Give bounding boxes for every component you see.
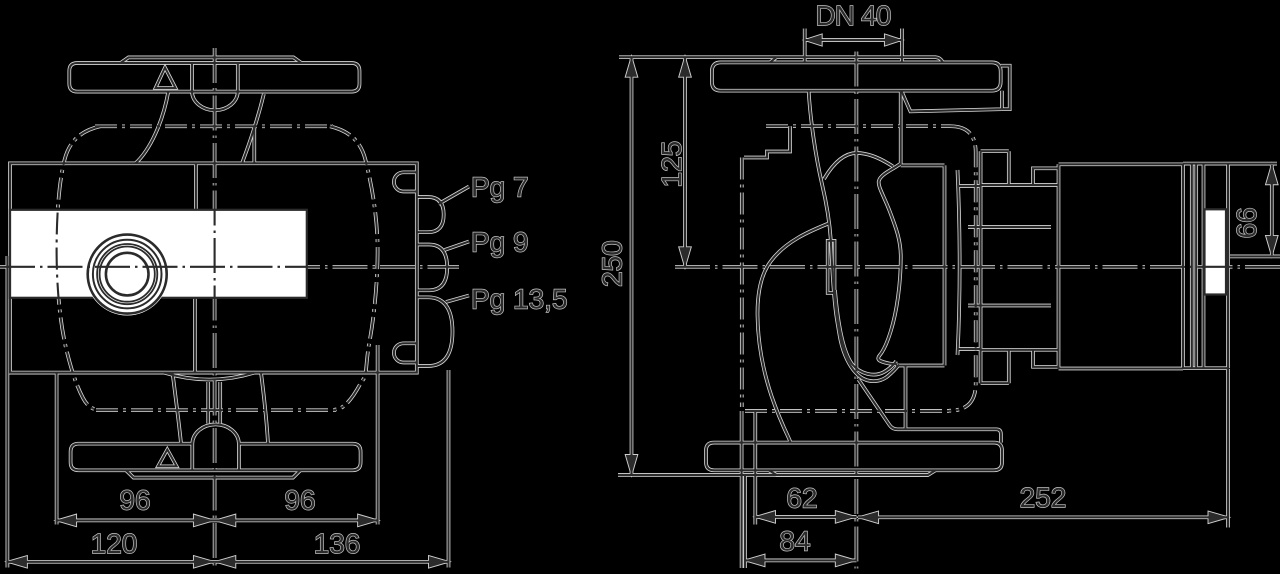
svg-text:Pg 7: Pg 7 xyxy=(471,172,529,203)
svg-text:62: 62 xyxy=(786,483,817,514)
svg-text:66: 66 xyxy=(1231,207,1262,238)
svg-text:252: 252 xyxy=(1020,482,1067,513)
svg-text:125: 125 xyxy=(656,141,687,188)
svg-text:DN 40: DN 40 xyxy=(815,0,891,31)
svg-text:136: 136 xyxy=(314,528,361,559)
svg-text:96: 96 xyxy=(119,485,150,516)
svg-text:Pg 13,5: Pg 13,5 xyxy=(471,284,568,315)
svg-text:250: 250 xyxy=(597,240,628,287)
svg-text:Pg 9: Pg 9 xyxy=(471,227,529,258)
svg-text:96: 96 xyxy=(284,485,315,516)
svg-text:84: 84 xyxy=(779,526,810,557)
svg-text:120: 120 xyxy=(91,528,138,559)
